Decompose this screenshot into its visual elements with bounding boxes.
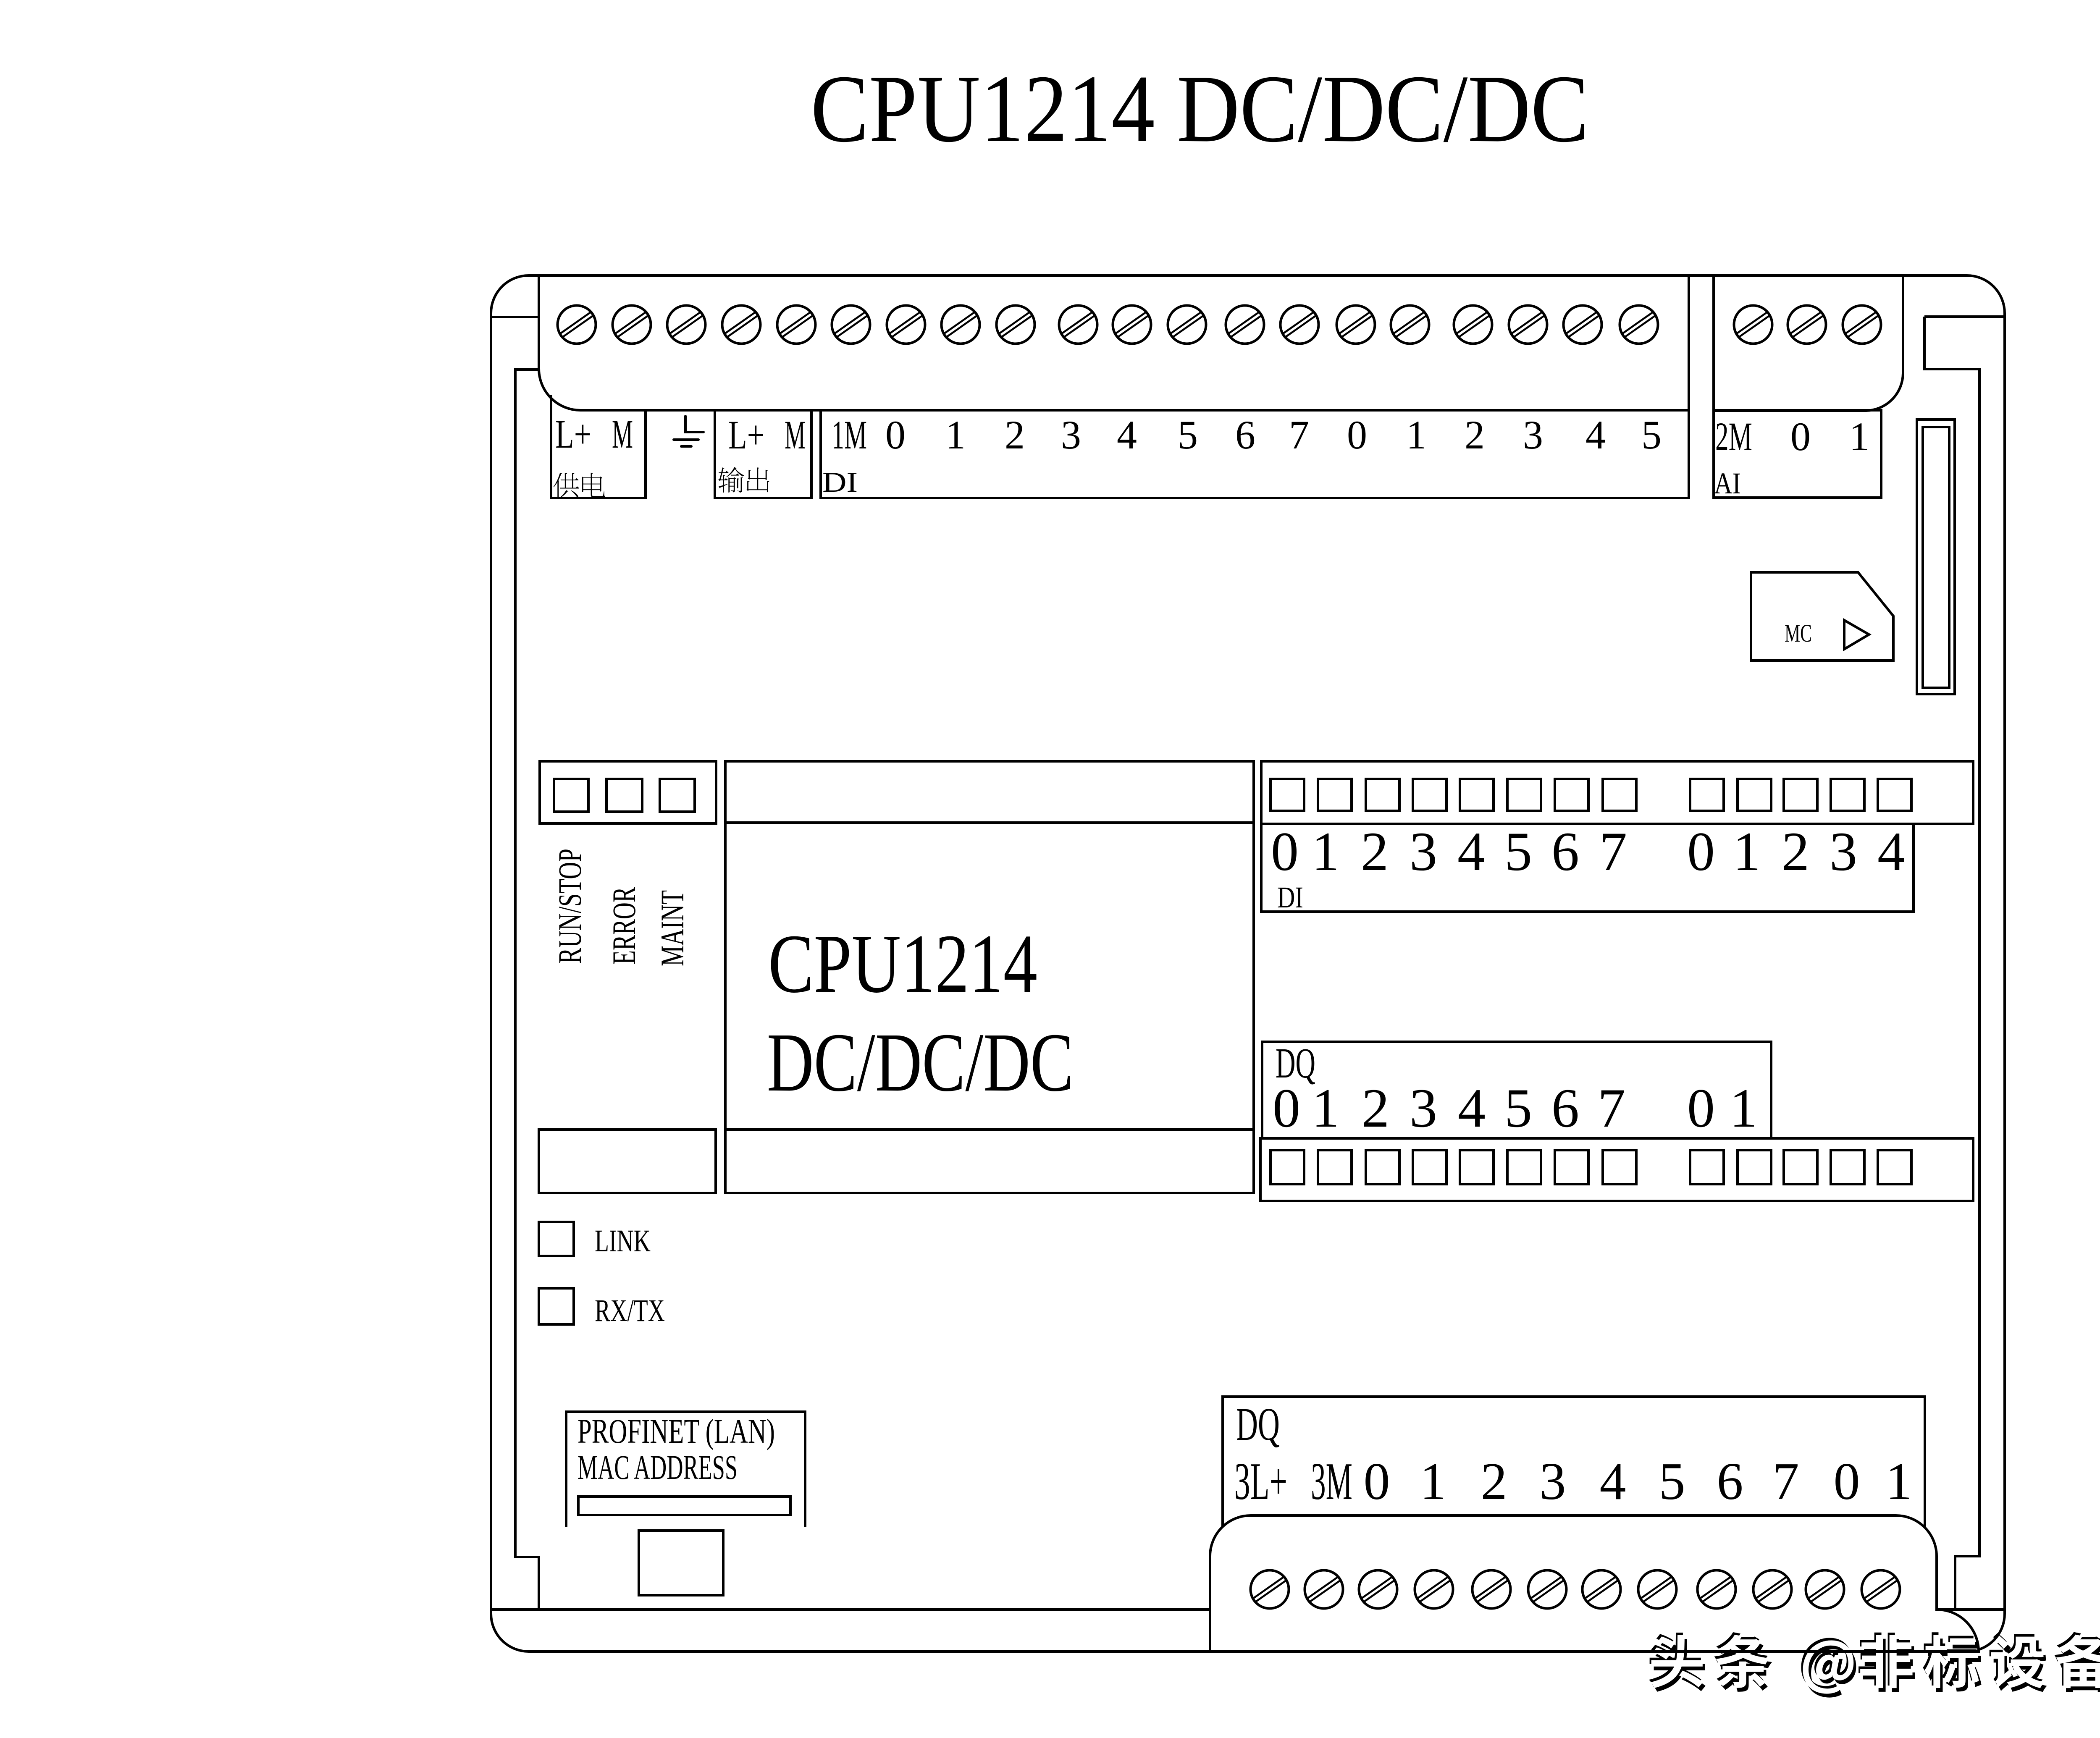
svg-text:0: 0 [1364, 1452, 1390, 1511]
svg-text:L+: L+ [555, 412, 591, 456]
svg-text:7: 7 [1599, 821, 1627, 882]
svg-text:CPU1214 DC/DC/DC: CPU1214 DC/DC/DC [811, 55, 1589, 162]
svg-text:5: 5 [1504, 1077, 1532, 1139]
svg-text:RUN/STOP: RUN/STOP [551, 849, 588, 964]
svg-text:3: 3 [1540, 1452, 1566, 1511]
svg-text:0: 0 [1790, 414, 1811, 459]
svg-text:7: 7 [1773, 1452, 1799, 1511]
svg-text:5: 5 [1178, 412, 1198, 457]
svg-text:0: 0 [1347, 412, 1367, 457]
svg-text:3: 3 [1061, 412, 1081, 457]
svg-text:2M: 2M [1715, 414, 1752, 459]
svg-text:6: 6 [1717, 1452, 1743, 1511]
svg-text:6: 6 [1551, 1077, 1579, 1139]
svg-text:M: M [612, 412, 633, 457]
svg-text:3L+: 3L+ [1234, 1452, 1287, 1511]
svg-text:5: 5 [1641, 412, 1662, 457]
svg-text:4: 4 [1458, 1077, 1486, 1139]
svg-text:4: 4 [1877, 821, 1905, 882]
svg-text:1: 1 [1886, 1452, 1912, 1511]
svg-text:LINK: LINK [595, 1224, 651, 1258]
svg-text:M: M [785, 413, 806, 458]
svg-text:3M: 3M [1311, 1452, 1352, 1511]
svg-text:6: 6 [1235, 412, 1255, 457]
svg-text:5: 5 [1504, 821, 1532, 882]
svg-text:2: 2 [1361, 821, 1389, 882]
svg-text:1: 1 [1733, 821, 1761, 882]
svg-text:4: 4 [1117, 412, 1137, 457]
svg-text:1: 1 [1849, 414, 1869, 459]
svg-text:2: 2 [1465, 412, 1485, 457]
svg-text:6: 6 [1551, 821, 1579, 882]
svg-text:1: 1 [945, 412, 966, 457]
svg-text:0: 0 [885, 412, 906, 457]
svg-text:1: 1 [1312, 1077, 1339, 1139]
svg-text:1: 1 [1420, 1452, 1446, 1511]
svg-text:MAC ADDRESS: MAC ADDRESS [577, 1448, 738, 1486]
svg-text:DQ: DQ [1236, 1399, 1280, 1450]
svg-text:4: 4 [1600, 1452, 1626, 1511]
svg-text:2: 2 [1782, 821, 1809, 882]
svg-text:0: 0 [1271, 821, 1299, 882]
svg-text:RX/TX: RX/TX [595, 1293, 665, 1328]
svg-text:7: 7 [1598, 1077, 1625, 1139]
svg-text:4: 4 [1585, 412, 1606, 457]
svg-text:0: 0 [1273, 1077, 1300, 1139]
svg-text:1M: 1M [832, 412, 867, 457]
svg-text:AI: AI [1714, 467, 1741, 500]
svg-text:3: 3 [1523, 412, 1543, 457]
svg-text:L+: L+ [728, 412, 764, 457]
svg-text:CPU1214: CPU1214 [768, 917, 1037, 1010]
svg-text:0: 0 [1687, 821, 1715, 882]
svg-text:DI: DI [1277, 881, 1303, 914]
svg-text:DI: DI [822, 466, 858, 498]
svg-text:DC/DC/DC: DC/DC/DC [767, 1016, 1074, 1109]
svg-text:PROFINET (LAN): PROFINET (LAN) [577, 1412, 775, 1450]
svg-text:1: 1 [1312, 821, 1339, 882]
svg-text:4: 4 [1457, 821, 1485, 882]
svg-text:3: 3 [1410, 821, 1437, 882]
svg-text:3: 3 [1410, 1077, 1437, 1139]
svg-text:MC: MC [1785, 619, 1812, 647]
svg-text:2: 2 [1005, 412, 1025, 457]
svg-text:1: 1 [1730, 1077, 1757, 1139]
svg-text:0: 0 [1687, 1077, 1715, 1139]
svg-text:ERROR: ERROR [606, 887, 642, 965]
svg-text:2: 2 [1362, 1077, 1389, 1139]
svg-text:2: 2 [1481, 1452, 1507, 1511]
svg-text:0: 0 [1834, 1452, 1860, 1511]
svg-text:7: 7 [1289, 412, 1309, 457]
svg-text:3: 3 [1830, 821, 1857, 882]
svg-text:1: 1 [1406, 412, 1426, 457]
svg-text:MAINT: MAINT [654, 890, 690, 966]
svg-text:5: 5 [1659, 1452, 1685, 1511]
